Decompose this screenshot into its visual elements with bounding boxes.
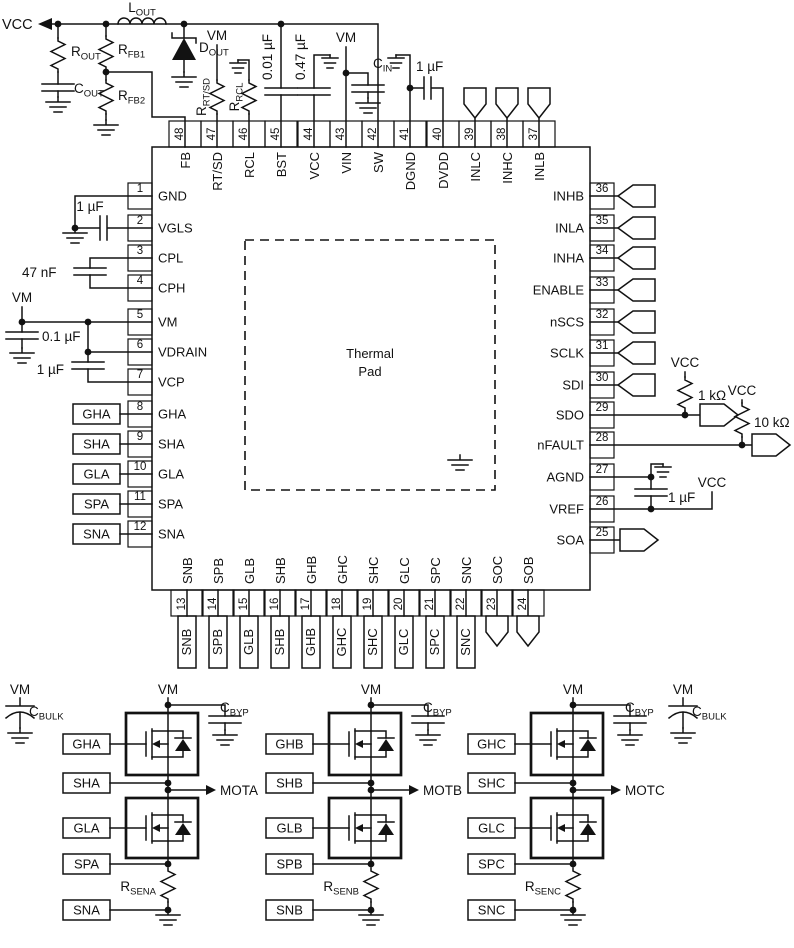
svg-text:CBULK: CBULK	[692, 704, 727, 723]
capacitor-cout: COUT	[42, 81, 104, 112]
svg-text:43: 43	[335, 128, 347, 141]
thermal-pad-label-1: Thermal	[346, 346, 394, 361]
svg-text:48: 48	[174, 128, 186, 141]
net-label-gl: GLC	[468, 818, 551, 838]
svg-text:GHC: GHC	[477, 737, 506, 752]
net-label-gh: GHA	[63, 734, 146, 754]
capacitor-vcc: 0.47 µF	[293, 34, 338, 147]
c-dvdd-label: 1 µF	[416, 59, 443, 74]
svg-text:VREF: VREF	[549, 502, 584, 517]
svg-text:MOTC: MOTC	[625, 783, 665, 798]
bulk-cap-left: VM CBULK	[6, 682, 64, 743]
svg-text:INHA: INHA	[553, 251, 584, 266]
svg-text:SHA: SHA	[73, 776, 100, 791]
vm-label: VM	[158, 682, 178, 697]
svg-text:FB: FB	[178, 152, 193, 169]
half-bridge-a: VM CBYP GHA SHA GLA SPA SNA MOTA RSENA	[63, 682, 258, 925]
svg-text:GLB: GLB	[276, 821, 302, 836]
svg-text:41: 41	[399, 128, 411, 141]
half-bridge-b: VM CBYP GHB SHB GLB SPB SNB MOTB RSENB	[266, 682, 462, 925]
svg-text:SW: SW	[371, 151, 386, 173]
net-label-sn: SNC	[468, 900, 573, 920]
svg-text:SPB: SPB	[210, 629, 225, 655]
svg-text:RCL: RCL	[242, 152, 257, 178]
svg-text:6: 6	[137, 339, 143, 351]
svg-text:MOTB: MOTB	[423, 783, 462, 798]
svg-text:BST: BST	[274, 152, 289, 177]
ground-icon	[561, 910, 585, 925]
svg-text:GHB: GHB	[303, 628, 318, 656]
left-circuit: 1 µF 47 nF VM 0.1 µF 1 µF GHA SHA GLA SP…	[6, 196, 152, 544]
svg-text:SHB: SHB	[273, 557, 288, 584]
svg-text:DVDD: DVDD	[436, 152, 451, 189]
svg-text:37: 37	[528, 128, 540, 141]
resistor-rout: ROUT	[51, 24, 101, 84]
c-cp-label: 47 nF	[22, 265, 57, 280]
svg-text:COUT: COUT	[74, 81, 104, 100]
svg-text:VIN: VIN	[339, 152, 354, 174]
svg-text:42: 42	[367, 128, 379, 141]
phase-output-motb: MOTB	[371, 783, 462, 798]
svg-text:GHA: GHA	[82, 407, 111, 422]
svg-text:5: 5	[137, 309, 143, 321]
ground-icon	[156, 910, 180, 925]
vcc-arrow-icon	[38, 18, 52, 30]
vcc-label: VCC	[698, 475, 727, 490]
svg-text:MOTA: MOTA	[220, 783, 258, 798]
left-pins: 1GND 2VGLS 3CPL 4CPH 5VM 6VDRAIN 7VCP 8G…	[128, 183, 207, 547]
svg-text:GHC: GHC	[334, 628, 349, 657]
vcc-label: VCC	[671, 355, 700, 370]
vm-label: VM	[207, 28, 227, 43]
svg-text:SOB: SOB	[521, 557, 536, 584]
svg-text:44: 44	[303, 127, 315, 140]
svg-text:0.47 µF: 0.47 µF	[293, 34, 308, 80]
svg-text:3: 3	[137, 245, 143, 257]
inductor-icon	[118, 18, 166, 24]
svg-text:4: 4	[137, 275, 144, 287]
svg-text:11: 11	[134, 491, 146, 503]
phase-output-motc: MOTC	[573, 783, 665, 798]
agnd-vref: 1 µF VCC	[590, 464, 726, 512]
net-label-gl: GLA	[63, 818, 146, 838]
svg-text:SNB: SNB	[276, 903, 303, 918]
svg-text:27: 27	[596, 464, 609, 476]
svg-text:GHA: GHA	[72, 737, 101, 752]
svg-text:26: 26	[596, 496, 609, 508]
resistor-rfb1: RFB1	[99, 24, 145, 72]
vcc-label: VCC	[728, 383, 757, 398]
vm-label: VM	[563, 682, 583, 697]
svg-text:GLA: GLA	[158, 467, 184, 482]
sense-resistor: RSENC	[525, 868, 580, 902]
svg-text:7: 7	[137, 369, 143, 381]
svg-text:24: 24	[517, 597, 529, 610]
vm-supply: VM 0.1 µF 1 µF	[6, 290, 152, 382]
svg-text:SPA: SPA	[84, 497, 109, 512]
svg-text:nSCS: nSCS	[550, 315, 584, 330]
svg-text:10: 10	[134, 461, 147, 473]
svg-text:RRT/SD: RRT/SD	[194, 78, 213, 116]
net-label-sn: SNA	[63, 900, 168, 920]
svg-text:nFAULT: nFAULT	[537, 438, 584, 453]
right-pins: 36INHB 35INLA 34INHA 33ENABLE 32nSCS 31S…	[533, 183, 614, 553]
output-arrow-soa	[620, 529, 658, 551]
svg-text:GLA: GLA	[83, 467, 109, 482]
svg-text:33: 33	[596, 277, 609, 289]
schematic-svg: Thermal Pad 48FB 47RT/SD 46RCL 45BST 44V…	[0, 0, 794, 948]
r-sdo-label: 1 kΩ	[698, 388, 726, 403]
svg-text:VGLS: VGLS	[158, 221, 193, 236]
thermal-pad-label-2: Pad	[358, 364, 381, 379]
svg-text:SNC: SNC	[458, 628, 473, 655]
svg-text:SPC: SPC	[478, 857, 505, 872]
svg-text:GND: GND	[158, 189, 187, 204]
svg-text:SDI: SDI	[562, 378, 584, 393]
svg-text:SPB: SPB	[211, 558, 226, 584]
svg-text:0.01 µF: 0.01 µF	[260, 34, 275, 80]
ground-icon	[359, 910, 383, 925]
svg-text:12: 12	[134, 521, 147, 533]
svg-text:SNB: SNB	[179, 629, 194, 656]
svg-text:GHA: GHA	[158, 407, 187, 422]
svg-text:17: 17	[300, 598, 312, 611]
svg-text:34: 34	[596, 245, 609, 257]
vm-label: VM	[336, 30, 356, 45]
r-nfault-label: 10 kΩ	[754, 415, 790, 430]
svg-text:SNC: SNC	[459, 557, 474, 584]
sense-resistor: RSENB	[323, 868, 378, 902]
bottom-pins: 13SNB 14SPB 15GLB 16SHB 17GHB 18GHC 19SH…	[171, 555, 544, 616]
svg-text:31: 31	[596, 340, 609, 352]
svg-text:VCP: VCP	[158, 375, 185, 390]
svg-text:AGND: AGND	[546, 470, 584, 485]
net-label-gh: GHC	[468, 734, 551, 754]
buck-regulator-circuit: VCC LOUT ROUT COUT RFB1 RFB2	[2, 0, 550, 147]
nfault-pullup: VCC 10 kΩ	[590, 383, 790, 456]
svg-text:INHC: INHC	[500, 152, 515, 184]
svg-text:SPC: SPC	[427, 629, 442, 656]
svg-text:INLB: INLB	[532, 152, 547, 181]
svg-text:9: 9	[137, 431, 143, 443]
svg-text:SDO: SDO	[556, 408, 584, 423]
svg-text:1: 1	[137, 183, 143, 195]
svg-text:SHC: SHC	[478, 776, 505, 791]
svg-text:INLA: INLA	[555, 221, 584, 236]
svg-text:15: 15	[238, 598, 250, 611]
svg-text:SOC: SOC	[490, 556, 505, 584]
svg-text:ENABLE: ENABLE	[533, 283, 585, 298]
svg-text:22: 22	[455, 598, 467, 611]
svg-text:19: 19	[362, 598, 374, 611]
svg-text:GLC: GLC	[397, 557, 412, 584]
thermal-pad-ground-icon	[448, 455, 472, 470]
svg-text:13: 13	[176, 598, 188, 611]
svg-text:VCC: VCC	[307, 152, 322, 179]
svg-text:INLC: INLC	[468, 152, 483, 182]
right-circuit: VCC 1 kΩ VCC 10 kΩ 1 µF VCC	[590, 185, 790, 551]
svg-text:SPA: SPA	[74, 857, 99, 872]
svg-text:21: 21	[424, 598, 436, 611]
svg-text:47: 47	[206, 128, 218, 141]
svg-text:RFB2: RFB2	[118, 88, 145, 107]
net-label-gl: GLB	[266, 818, 349, 838]
svg-text:35: 35	[596, 215, 609, 227]
svg-text:46: 46	[238, 128, 250, 141]
svg-text:28: 28	[596, 432, 609, 444]
svg-text:GHB: GHB	[304, 556, 319, 584]
svg-text:16: 16	[269, 598, 281, 611]
svg-text:SHA: SHA	[83, 437, 110, 452]
svg-text:RT/SD: RT/SD	[210, 152, 225, 191]
top-pins: 48FB 47RT/SD 46RCL 45BST 44VCC 43VIN 42S…	[169, 121, 555, 191]
svg-text:18: 18	[331, 598, 343, 611]
half-bridge-c: VM CBYP GHC SHC GLC SPC SNC MOTC RSENC	[468, 682, 665, 925]
svg-text:SNA: SNA	[73, 903, 100, 918]
svg-text:GLB: GLB	[241, 629, 256, 655]
svg-text:CPL: CPL	[158, 251, 183, 266]
phase-output-mota: MOTA	[168, 783, 258, 798]
vm-label: VM	[10, 682, 30, 697]
svg-text:SHB: SHB	[272, 629, 287, 656]
svg-text:GLB: GLB	[242, 558, 257, 584]
svg-text:23: 23	[486, 598, 498, 611]
c-vm-label: 0.1 µF	[42, 329, 81, 344]
c-vgls-label: 1 µF	[76, 199, 103, 214]
svg-text:SNA: SNA	[158, 527, 185, 542]
svg-text:CPH: CPH	[158, 281, 185, 296]
svg-text:SHB: SHB	[276, 776, 303, 791]
output-arrow-sdo	[700, 404, 738, 426]
bulk-cap-right: VM CBULK	[669, 682, 727, 743]
svg-text:DGND: DGND	[403, 152, 418, 190]
svg-text:38: 38	[496, 128, 508, 141]
svg-text:ROUT: ROUT	[71, 44, 101, 63]
svg-text:CIN: CIN	[373, 56, 392, 75]
svg-text:14: 14	[207, 597, 219, 610]
svg-text:SPB: SPB	[276, 857, 302, 872]
svg-text:2: 2	[137, 215, 143, 227]
svg-text:36: 36	[596, 183, 609, 195]
svg-text:32: 32	[596, 309, 609, 321]
svg-text:45: 45	[270, 128, 282, 141]
chip-body: Thermal Pad	[152, 147, 590, 590]
vm-label: VM	[12, 290, 32, 305]
svg-text:SOA: SOA	[557, 533, 585, 548]
svg-text:GLC: GLC	[396, 629, 411, 656]
svg-text:VM: VM	[158, 315, 178, 330]
charge-pump-cap: 47 nF	[22, 258, 152, 288]
svg-text:INHB: INHB	[553, 189, 584, 204]
svg-text:SNB: SNB	[180, 557, 195, 584]
svg-text:SNC: SNC	[478, 903, 505, 918]
svg-text:GHC: GHC	[335, 555, 350, 584]
svg-text:20: 20	[393, 598, 405, 611]
net-label-gh: GHB	[266, 734, 349, 754]
svg-text:SPC: SPC	[428, 557, 443, 584]
svg-text:LOUT: LOUT	[128, 0, 156, 19]
schematic-page: Thermal Pad 48FB 47RT/SD 46RCL 45BST 44V…	[0, 0, 794, 948]
svg-text:RSENA: RSENA	[120, 879, 156, 898]
inductor-lout: LOUT	[118, 0, 166, 24]
output-arrow-nfault	[752, 434, 790, 456]
c-agnd-label: 1 µF	[668, 490, 695, 505]
svg-text:SHC: SHC	[366, 557, 381, 584]
svg-text:RSENB: RSENB	[323, 879, 359, 898]
svg-text:SPA: SPA	[158, 497, 183, 512]
net-label-sn: SNB	[266, 900, 371, 920]
vm-label: VM	[673, 682, 693, 697]
vm-label: VM	[361, 682, 381, 697]
svg-text:8: 8	[137, 401, 143, 413]
svg-text:CBULK: CBULK	[29, 704, 64, 723]
c-vcp-label: 1 µF	[37, 362, 64, 377]
svg-text:SHA: SHA	[158, 437, 185, 452]
svg-text:RFB1: RFB1	[118, 42, 145, 61]
svg-text:25: 25	[596, 527, 609, 539]
svg-text:GHB: GHB	[275, 737, 303, 752]
svg-text:RSENC: RSENC	[525, 879, 561, 898]
svg-text:30: 30	[596, 372, 609, 384]
sense-resistor: RSENA	[120, 868, 175, 902]
svg-text:GLA: GLA	[73, 821, 99, 836]
svg-text:SHC: SHC	[365, 628, 380, 655]
svg-text:29: 29	[596, 402, 609, 414]
svg-text:VDRAIN: VDRAIN	[158, 345, 207, 360]
vcc-rail-label: VCC	[2, 17, 33, 33]
svg-text:39: 39	[464, 128, 476, 141]
svg-text:GLC: GLC	[478, 821, 505, 836]
svg-text:SNA: SNA	[83, 527, 110, 542]
resistor-rfb2: RFB2	[94, 72, 145, 135]
svg-text:SCLK: SCLK	[550, 346, 584, 361]
svg-text:40: 40	[432, 128, 444, 141]
